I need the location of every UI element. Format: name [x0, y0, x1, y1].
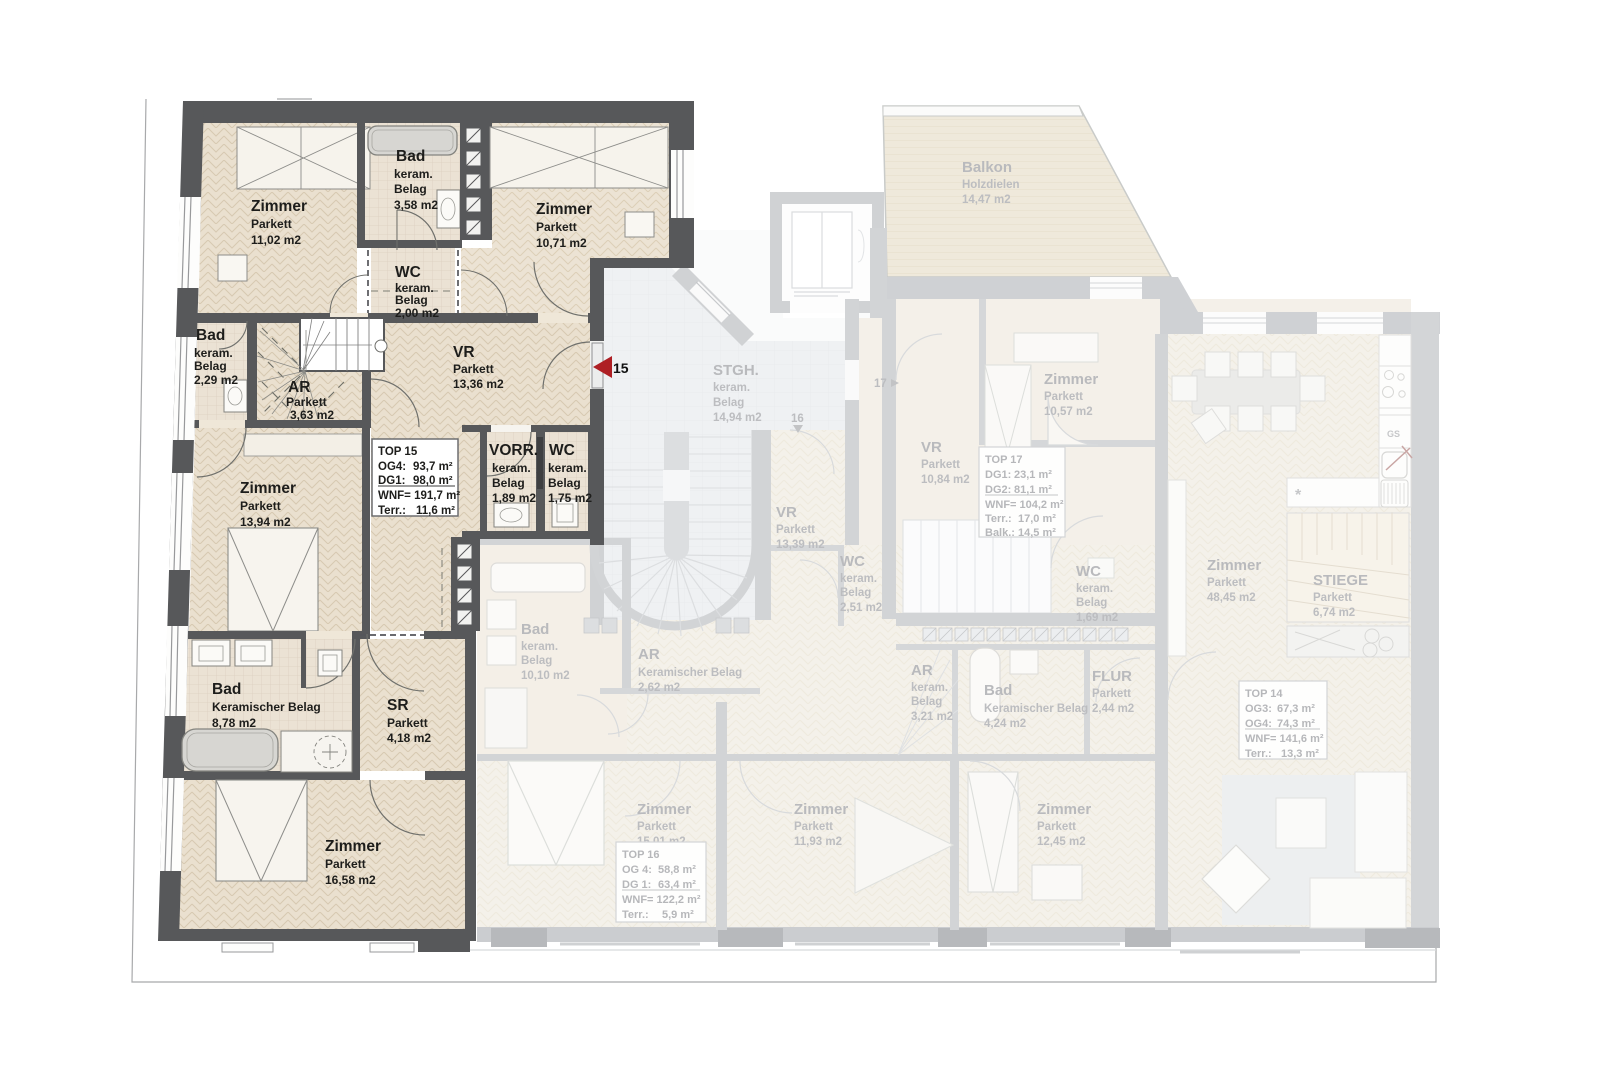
svg-text:10,71 m2: 10,71 m2: [536, 236, 587, 250]
svg-text:Parkett: Parkett: [776, 524, 815, 536]
svg-text:Zimmer: Zimmer: [1044, 371, 1098, 388]
svg-text:Terr.:: Terr.:: [622, 909, 649, 921]
svg-text:FLUR: FLUR: [1092, 668, 1132, 685]
svg-text:keram.: keram.: [548, 461, 587, 475]
svg-text:13,94 m2: 13,94 m2: [240, 515, 291, 529]
svg-text:keram.: keram.: [1076, 583, 1113, 595]
svg-text:58,8 m²: 58,8 m²: [658, 864, 696, 876]
svg-text:Zimmer: Zimmer: [1037, 801, 1091, 818]
svg-text:Terr.:: Terr.:: [378, 505, 406, 517]
svg-text:13,39 m2: 13,39 m2: [776, 539, 825, 551]
svg-text:AR: AR: [911, 662, 933, 679]
svg-text:10,57 m2: 10,57 m2: [1044, 406, 1093, 418]
svg-text:Parkett: Parkett: [794, 821, 833, 833]
svg-text:Bad: Bad: [396, 148, 425, 165]
svg-text:6,74 m2: 6,74 m2: [1313, 607, 1355, 619]
svg-text:Belag: Belag: [521, 655, 552, 667]
svg-text:Belag: Belag: [194, 359, 227, 373]
svg-text:WC: WC: [395, 264, 421, 281]
svg-text:TOP 16: TOP 16: [622, 849, 660, 861]
svg-text:OG4:: OG4:: [378, 461, 406, 473]
svg-text:keram.: keram.: [713, 382, 750, 394]
svg-text:WNF= 122,2 m²: WNF= 122,2 m²: [622, 894, 701, 906]
svg-text:Parkett: Parkett: [251, 217, 292, 231]
svg-text:STGH.: STGH.: [713, 362, 759, 379]
svg-text:Zimmer: Zimmer: [794, 801, 848, 818]
svg-text:VR: VR: [921, 439, 942, 456]
svg-text:Belag: Belag: [548, 476, 581, 490]
svg-text:Bad: Bad: [984, 682, 1012, 699]
svg-text:10,84 m2: 10,84 m2: [921, 474, 970, 486]
svg-text:2,00 m2: 2,00 m2: [395, 306, 439, 320]
svg-text:Terr.:: Terr.:: [985, 513, 1012, 525]
svg-text:Zimmer: Zimmer: [536, 201, 592, 218]
svg-text:TOP 14: TOP 14: [1245, 688, 1283, 700]
svg-text:OG 4:: OG 4:: [622, 864, 652, 876]
svg-text:12,45 m2: 12,45 m2: [1037, 836, 1086, 848]
svg-text:3,58 m2: 3,58 m2: [394, 198, 438, 212]
svg-text:WC: WC: [549, 442, 575, 459]
svg-text:TOP 17: TOP 17: [985, 454, 1023, 466]
svg-text:keram.: keram.: [394, 167, 433, 181]
svg-text:STIEGE: STIEGE: [1313, 572, 1368, 589]
svg-text:15: 15: [613, 360, 629, 376]
svg-text:11,02 m2: 11,02 m2: [251, 233, 301, 247]
svg-text:AR: AR: [288, 379, 310, 396]
svg-text:13,36 m2: 13,36 m2: [453, 377, 504, 391]
svg-text:Parkett: Parkett: [637, 821, 676, 833]
svg-text:11,6 m²: 11,6 m²: [416, 505, 455, 517]
svg-text:Balk.:: Balk.:: [985, 527, 1015, 539]
svg-text:DG 1:: DG 1:: [622, 879, 651, 891]
svg-text:keram.: keram.: [521, 641, 558, 653]
svg-text:2,44 m2: 2,44 m2: [1092, 703, 1134, 715]
svg-text:Parkett: Parkett: [536, 220, 577, 234]
svg-text:74,3 m²: 74,3 m²: [1277, 718, 1315, 730]
svg-text:WC: WC: [840, 553, 865, 570]
svg-text:Holzdielen: Holzdielen: [962, 179, 1020, 191]
svg-text:Keramischer Belag: Keramischer Belag: [984, 703, 1088, 715]
svg-text:16: 16: [791, 413, 804, 425]
svg-text:13,3 m²: 13,3 m²: [1281, 748, 1319, 760]
svg-text:1,89 m2: 1,89 m2: [492, 491, 536, 505]
svg-text:keram.: keram.: [194, 346, 233, 360]
svg-text:2,51 m2: 2,51 m2: [840, 602, 882, 614]
svg-text:DG2:: DG2:: [985, 484, 1011, 496]
svg-text:Belag: Belag: [395, 293, 428, 307]
svg-text:Keramischer Belag: Keramischer Belag: [212, 700, 321, 714]
svg-text:14,94 m2: 14,94 m2: [713, 412, 762, 424]
svg-text:Parkett: Parkett: [240, 499, 281, 513]
svg-text:Belag: Belag: [394, 182, 427, 196]
svg-text:OG4:: OG4:: [1245, 718, 1272, 730]
svg-text:Zimmer: Zimmer: [325, 838, 381, 855]
svg-text:5,9 m²: 5,9 m²: [662, 909, 694, 921]
svg-text:11,93 m2: 11,93 m2: [794, 836, 842, 848]
svg-text:17: 17: [874, 378, 887, 390]
svg-text:Parkett: Parkett: [387, 716, 428, 730]
svg-text:23,1 m²: 23,1 m²: [1014, 469, 1052, 481]
svg-text:keram.: keram.: [911, 682, 948, 694]
svg-text:1,69 m2: 1,69 m2: [1076, 612, 1118, 624]
svg-text:4,24 m2: 4,24 m2: [984, 718, 1026, 730]
svg-text:WNF= 141,6 m²: WNF= 141,6 m²: [1245, 733, 1324, 745]
svg-text:WNF= 104,2 m²: WNF= 104,2 m²: [985, 499, 1064, 511]
svg-text:keram.: keram.: [840, 573, 877, 585]
svg-text:Bad: Bad: [521, 621, 549, 638]
svg-text:WC: WC: [1076, 563, 1101, 580]
svg-text:48,45 m2: 48,45 m2: [1207, 592, 1256, 604]
svg-text:VORR.: VORR.: [489, 442, 538, 459]
svg-text:1,75 m2: 1,75 m2: [548, 491, 592, 505]
svg-text:3,63 m2: 3,63 m2: [290, 408, 334, 422]
svg-text:WNF= 191,7 m²: WNF= 191,7 m²: [378, 490, 460, 502]
svg-text:VR: VR: [776, 504, 797, 521]
svg-text:VR: VR: [453, 344, 475, 361]
svg-text:DG1:: DG1:: [378, 475, 405, 487]
svg-text:Zimmer: Zimmer: [240, 480, 296, 497]
svg-text:98,0 m²: 98,0 m²: [413, 475, 453, 487]
svg-text:17,0 m²: 17,0 m²: [1018, 513, 1056, 525]
svg-text:Zimmer: Zimmer: [251, 198, 307, 215]
svg-text:Balkon: Balkon: [962, 159, 1012, 176]
svg-text:Parkett: Parkett: [286, 395, 327, 409]
svg-text:63,4 m²: 63,4 m²: [658, 879, 696, 891]
svg-text:Parkett: Parkett: [1313, 592, 1352, 604]
svg-text:DG1:: DG1:: [985, 469, 1011, 481]
svg-text:Keramischer Belag: Keramischer Belag: [638, 667, 742, 679]
svg-text:Parkett: Parkett: [453, 362, 494, 376]
svg-text:14,47 m2: 14,47 m2: [962, 194, 1011, 206]
svg-text:Parkett: Parkett: [1207, 577, 1246, 589]
svg-text:*: *: [1295, 487, 1302, 504]
svg-text:TOP 15: TOP 15: [378, 446, 418, 458]
svg-text:4,18 m2: 4,18 m2: [387, 731, 431, 745]
svg-text:AR: AR: [638, 646, 660, 663]
svg-text:SR: SR: [387, 697, 409, 714]
svg-text:8,78 m2: 8,78 m2: [212, 716, 256, 730]
svg-text:14,5 m²: 14,5 m²: [1018, 527, 1056, 539]
svg-text:Terr.:: Terr.:: [1245, 748, 1272, 760]
svg-text:Bad: Bad: [212, 681, 241, 698]
svg-text:Zimmer: Zimmer: [637, 801, 691, 818]
svg-text:Parkett: Parkett: [1037, 821, 1076, 833]
svg-text:GS: GS: [1387, 429, 1400, 439]
svg-text:10,10 m2: 10,10 m2: [521, 670, 570, 682]
svg-text:16,58 m2: 16,58 m2: [325, 873, 376, 887]
svg-text:3,21 m2: 3,21 m2: [911, 711, 953, 723]
svg-text:Belag: Belag: [713, 397, 744, 409]
svg-text:Bad: Bad: [196, 327, 225, 344]
svg-text:Belag: Belag: [1076, 597, 1107, 609]
svg-text:67,3 m²: 67,3 m²: [1277, 703, 1315, 715]
svg-text:Parkett: Parkett: [921, 459, 960, 471]
svg-text:keram.: keram.: [492, 461, 531, 475]
svg-text:Belag: Belag: [492, 476, 525, 490]
svg-text:2,29 m2: 2,29 m2: [194, 373, 238, 387]
svg-text:93,7 m²: 93,7 m²: [413, 461, 453, 473]
svg-text:2,62 m2: 2,62 m2: [638, 682, 680, 694]
svg-text:Belag: Belag: [911, 696, 942, 708]
svg-text:Parkett: Parkett: [325, 857, 366, 871]
svg-text:81,1 m²: 81,1 m²: [1014, 484, 1052, 496]
svg-text:Parkett: Parkett: [1044, 391, 1083, 403]
svg-text:Zimmer: Zimmer: [1207, 557, 1261, 574]
svg-text:Belag: Belag: [840, 587, 871, 599]
svg-text:OG3:: OG3:: [1245, 703, 1272, 715]
svg-text:Parkett: Parkett: [1092, 688, 1131, 700]
